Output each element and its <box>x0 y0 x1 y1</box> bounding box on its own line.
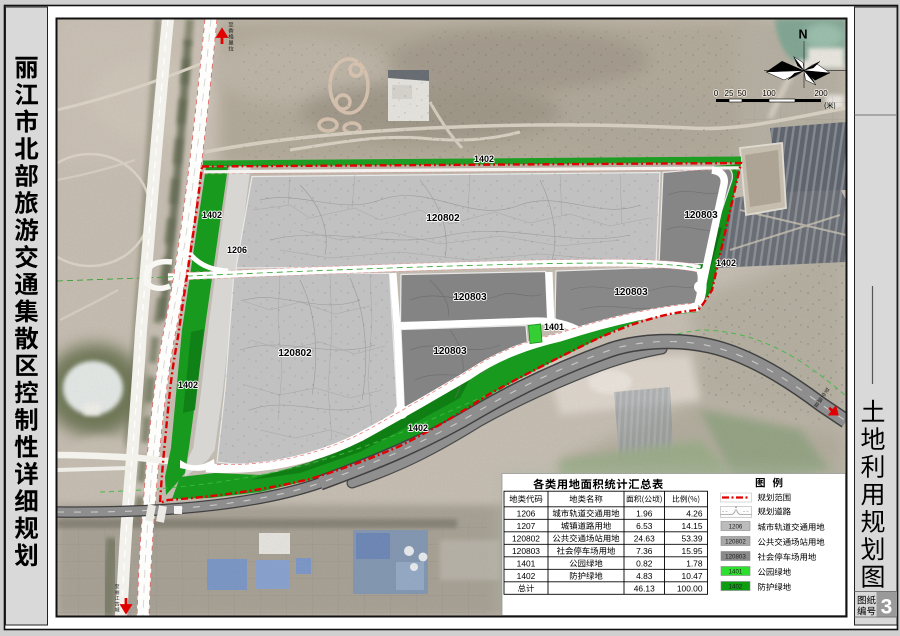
svg-text:1206: 1206 <box>517 508 536 518</box>
svg-text:1402: 1402 <box>474 154 494 164</box>
svg-text:7.36: 7.36 <box>636 546 653 556</box>
svg-text:1206: 1206 <box>227 245 247 255</box>
svg-text:120803: 120803 <box>614 287 648 298</box>
svg-text:3: 3 <box>881 596 893 619</box>
svg-text:1207: 1207 <box>517 521 536 531</box>
svg-text:25: 25 <box>725 89 734 98</box>
svg-text:1401: 1401 <box>517 558 536 568</box>
svg-text:120802: 120802 <box>426 213 460 224</box>
svg-text:1.96: 1.96 <box>636 508 653 518</box>
svg-text:1402: 1402 <box>517 571 536 581</box>
svg-text:120802: 120802 <box>725 538 746 545</box>
svg-text:120803: 120803 <box>512 546 540 556</box>
svg-text:1401: 1401 <box>544 322 564 332</box>
svg-text:1206: 1206 <box>729 523 743 530</box>
svg-text:4.26: 4.26 <box>686 508 703 518</box>
svg-text:6.53: 6.53 <box>636 521 653 531</box>
svg-text:46.13: 46.13 <box>634 583 655 593</box>
svg-text:120802: 120802 <box>512 533 540 543</box>
svg-text:15.95: 15.95 <box>682 546 703 556</box>
svg-text:0.82: 0.82 <box>636 558 653 568</box>
svg-text:N: N <box>798 28 807 42</box>
svg-text:0: 0 <box>714 89 719 98</box>
svg-text:120803: 120803 <box>453 292 487 303</box>
svg-text:120803: 120803 <box>684 210 718 221</box>
svg-text:14.15: 14.15 <box>682 521 703 531</box>
svg-text:24.63: 24.63 <box>634 533 655 543</box>
svg-text:100: 100 <box>762 89 776 98</box>
svg-text:53.39: 53.39 <box>682 533 703 543</box>
svg-text:10.47: 10.47 <box>682 571 703 581</box>
svg-text:1402: 1402 <box>408 423 428 433</box>
svg-text:120803: 120803 <box>725 553 746 560</box>
svg-text:100.00: 100.00 <box>677 583 703 593</box>
svg-text:120802: 120802 <box>278 348 312 359</box>
svg-text:1402: 1402 <box>178 380 198 390</box>
svg-text:1402: 1402 <box>716 258 736 268</box>
svg-text:1.78: 1.78 <box>686 558 703 568</box>
svg-text:50: 50 <box>738 89 747 98</box>
svg-text:1402: 1402 <box>202 210 222 220</box>
svg-text:4.83: 4.83 <box>636 571 653 581</box>
svg-text:200: 200 <box>814 89 828 98</box>
svg-text:1401: 1401 <box>729 568 743 575</box>
svg-text:120803: 120803 <box>433 346 467 357</box>
svg-text:1402: 1402 <box>729 583 743 590</box>
